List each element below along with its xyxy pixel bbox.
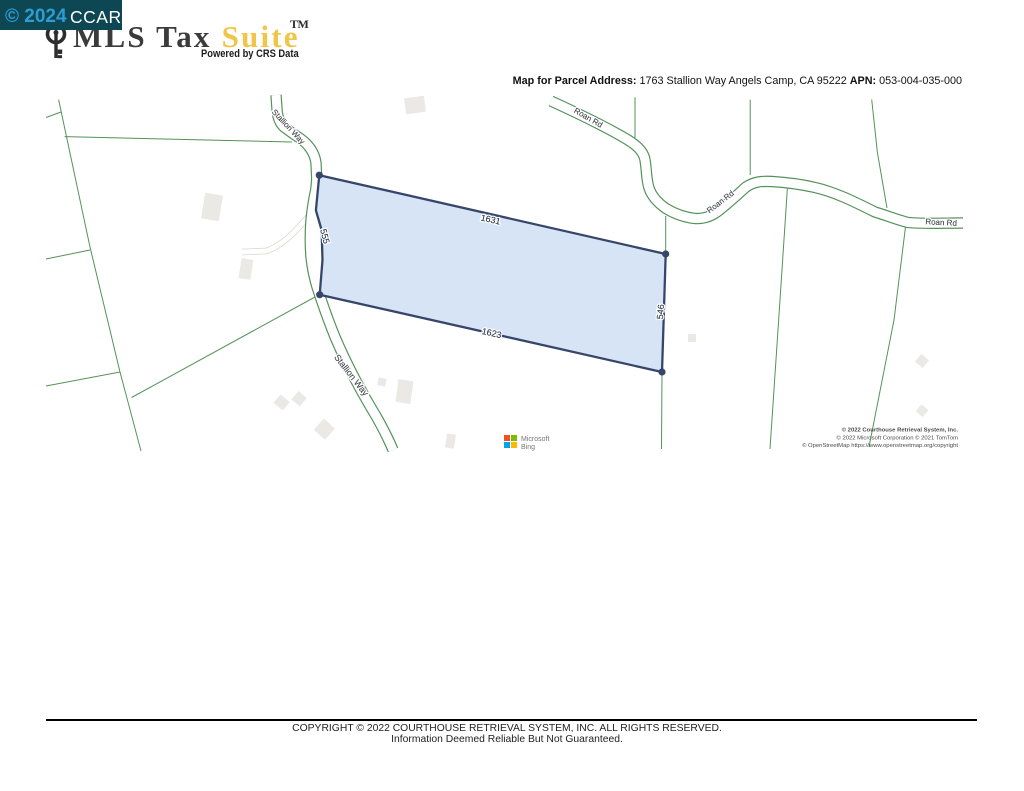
- svg-text:© OpenStreetMap https://www.op: © OpenStreetMap https://www.openstreetma…: [802, 442, 958, 449]
- svg-text:© 2022 Courthouse Retrieval Sy: © 2022 Courthouse Retrieval System, Inc.: [842, 427, 959, 434]
- svg-text:546: 546: [655, 304, 666, 320]
- svg-text:Roan Rd: Roan Rd: [925, 217, 957, 228]
- svg-text:Stallion Way: Stallion Way: [270, 108, 307, 146]
- svg-text:Bing: Bing: [521, 444, 535, 451]
- svg-text:Microsoft: Microsoft: [521, 436, 549, 443]
- svg-text:Stallion Way: Stallion Way: [332, 352, 371, 398]
- svg-text:© 2022 Microsoft Corporation ©: © 2022 Microsoft Corporation © 2021 TomT…: [836, 435, 958, 442]
